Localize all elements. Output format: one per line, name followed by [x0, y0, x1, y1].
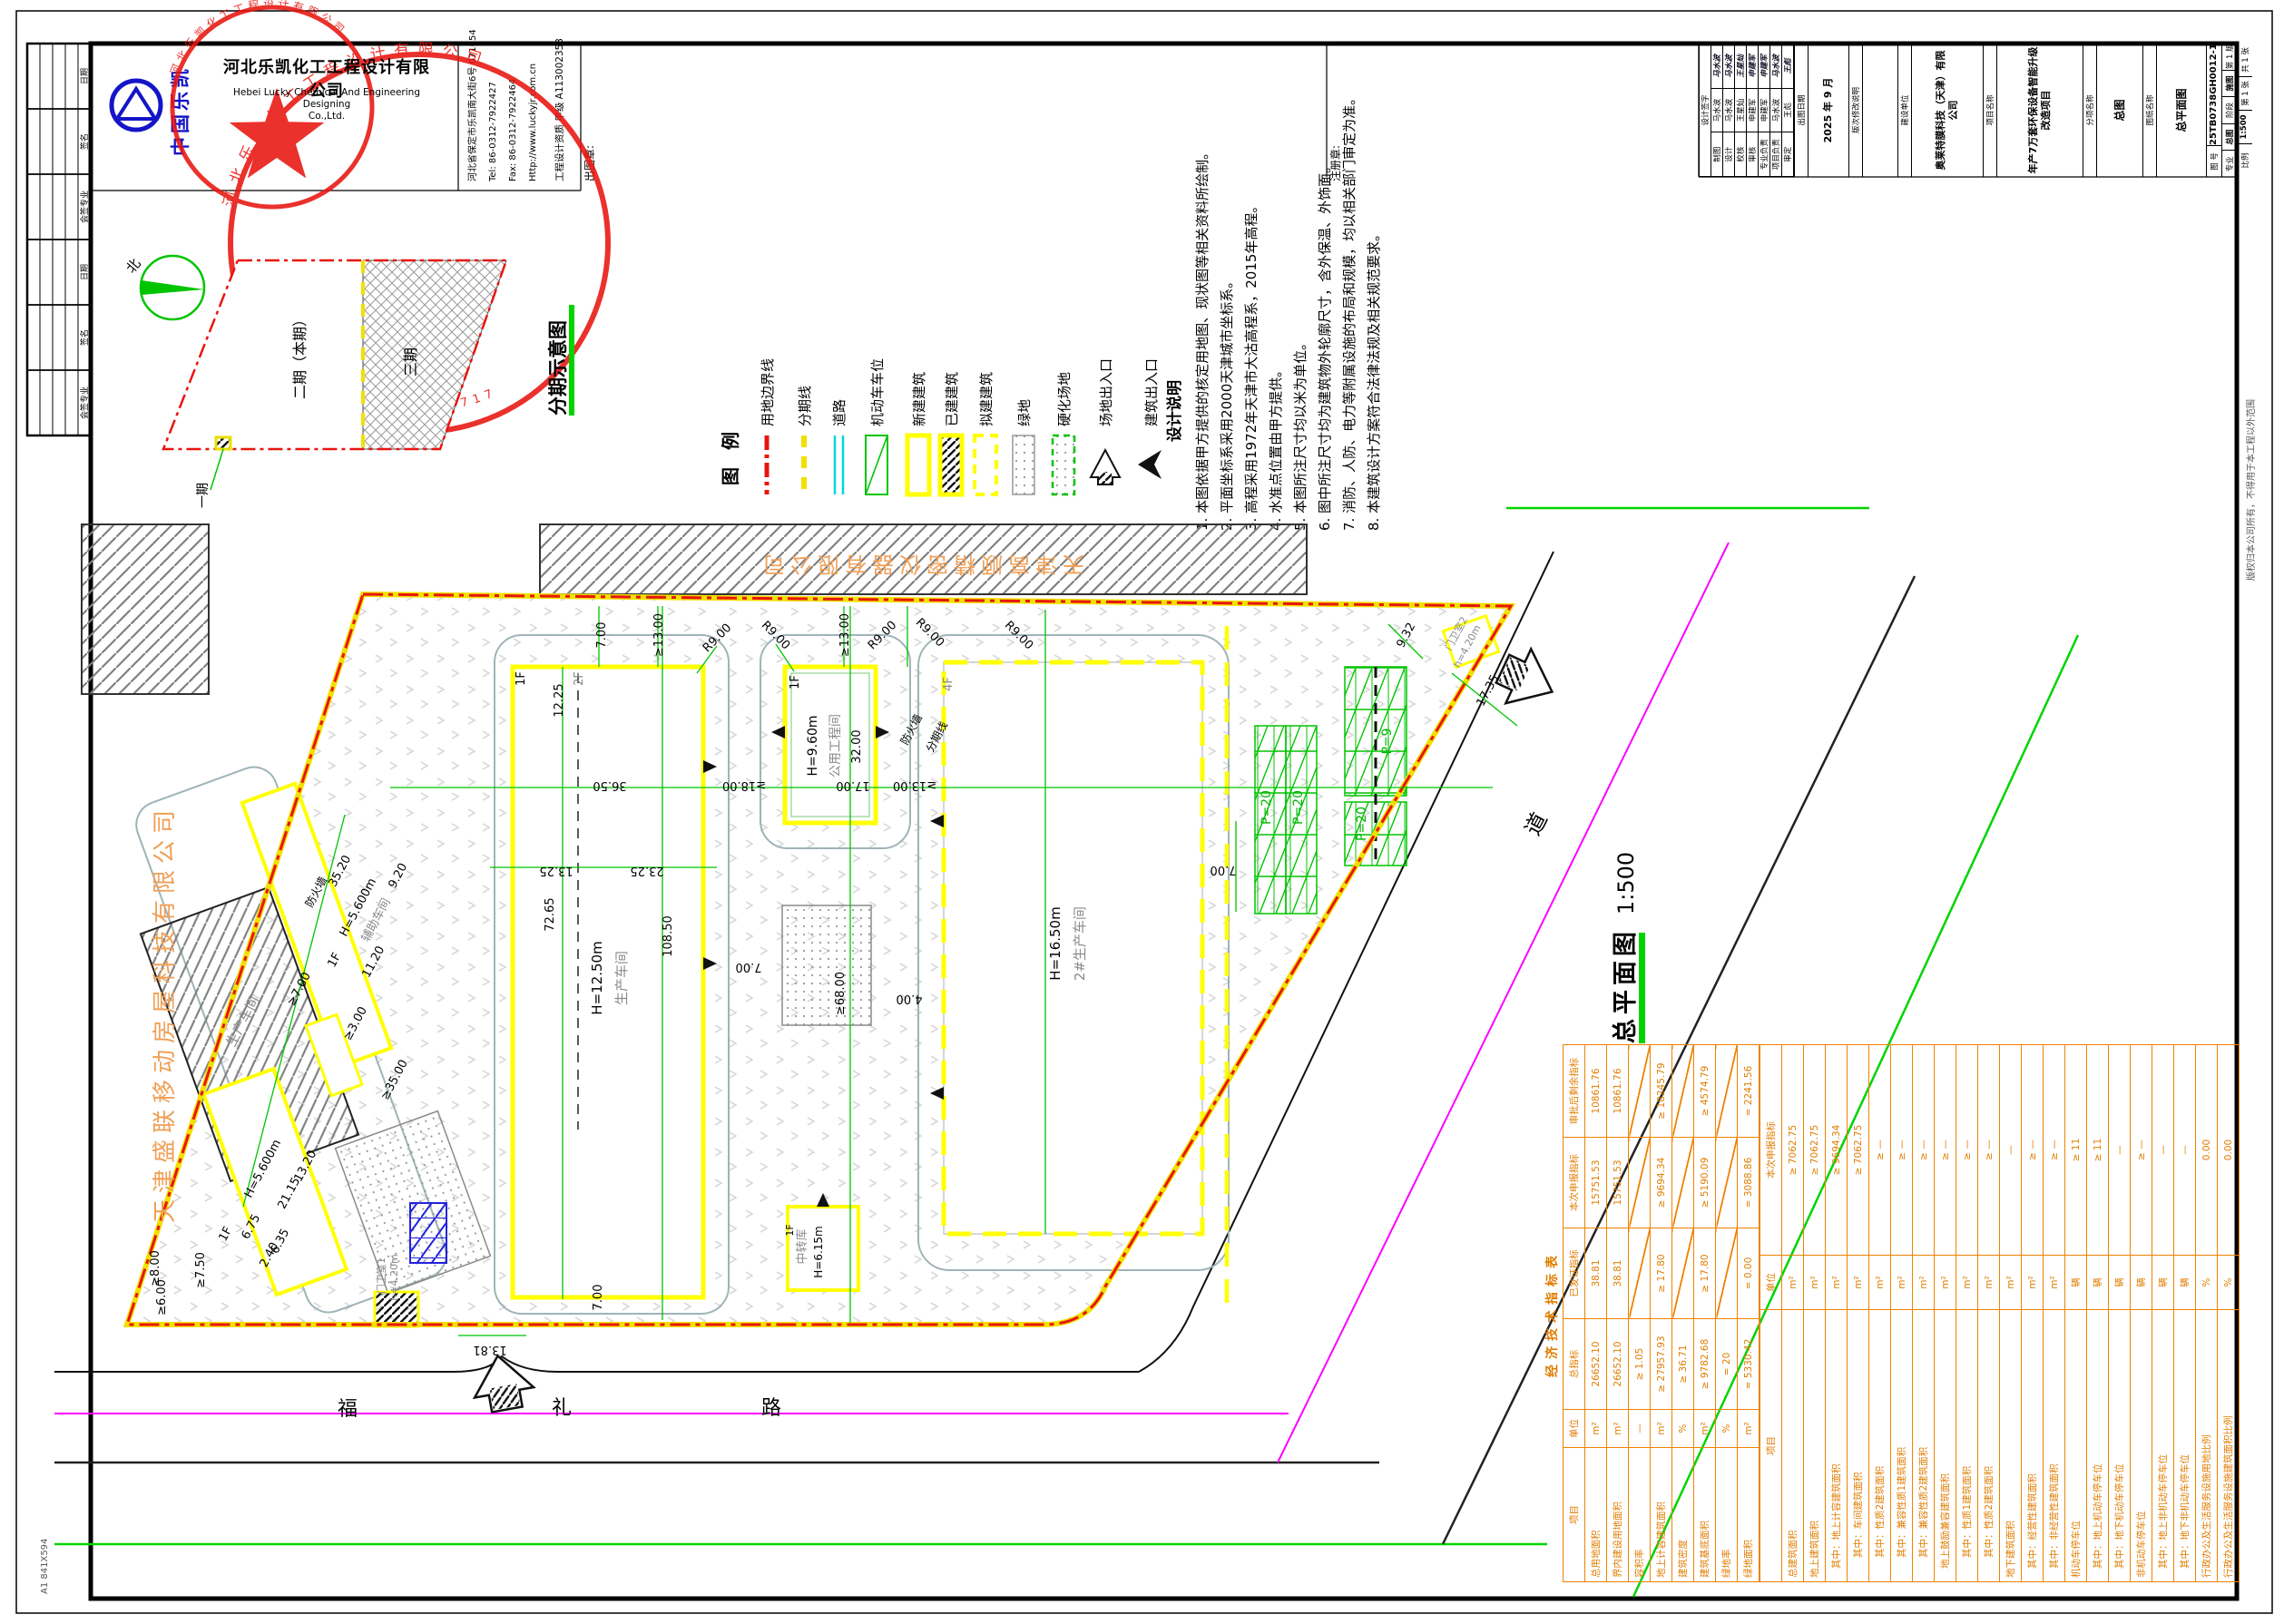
econ-cell: 辆 [2109, 1256, 2131, 1310]
legend-swatch-green [1013, 435, 1034, 494]
econ-cell: 其中：地下机动车停车位 [2109, 1310, 2131, 1582]
bicycle-parking [410, 1203, 446, 1263]
legend-swatch-proposed [975, 435, 996, 494]
signoff-header: 设计签字 [1700, 44, 1711, 177]
econ-cell: ≥ 18245.79 [1651, 1045, 1672, 1138]
econ-cell: 非机动车停车位 [2131, 1310, 2152, 1582]
titleblock-row-label: 分项名称 [2083, 44, 2097, 177]
signoff-role: 制图 [1711, 132, 1723, 177]
econ-row: 绿地面积m²= 5330.42= 0.00= 3088.86= 2241.56 [1738, 1045, 1760, 1582]
econ-cell: 辆 [2152, 1256, 2174, 1310]
signoff-signature: 马水波 [1770, 44, 1782, 89]
phase3-label: 三期 [402, 347, 419, 377]
stage-label: 阶段 [2222, 96, 2237, 123]
econ-cell: 10861.76 [1607, 1045, 1629, 1138]
econ-header: 单位 [1760, 1256, 1782, 1310]
rect [1099, 472, 1112, 484]
econ-cell: 其中：地上机动车停车位 [2087, 1310, 2109, 1582]
drawing-number-block: 图 号 25TB0738GH0012-1-01 专业 总图 阶段 施图 第 1 … [2206, 44, 2252, 177]
econ-table-part2: 项目单位本次申报指标总建筑面积m²≥ 7062.75地上建筑面积m²≥ 7062… [1760, 1044, 2240, 1582]
scale-label: 比例 [2238, 143, 2252, 177]
title-block: 设计签字制图 马水波 马水波设计 马水波 马水波校核 王星灿 王星灿审核 申建军 [1699, 44, 2237, 177]
phase-diagram-title: 分期示意图 [547, 320, 569, 416]
titleblock-row: 图纸名称 总平面图 [2142, 44, 2206, 177]
titleblock-row-label: 项目名称 [1984, 44, 1997, 177]
econ-cell: 辆 [2065, 1256, 2087, 1310]
plan-label: P=20 [1291, 790, 1306, 825]
econ-cell: ≥ — [1978, 1045, 2000, 1256]
econ-cell: m² [1848, 1256, 1869, 1310]
plan-label: 1F [789, 675, 802, 690]
econ-cell: m² [1913, 1256, 1935, 1310]
signoff-name: 申建军 [1759, 88, 1770, 132]
plan-label: 公用工程间 [828, 714, 843, 778]
econ-row: 建筑基底面积m²≥ 9782.68≥ 17.80≥ 5190.09≥ 4574.… [1694, 1045, 1716, 1582]
legend-item-label: 道路 [831, 399, 848, 426]
econ-cell: ≥ 11 [2087, 1045, 2109, 1256]
econ-cell: m² [1694, 1410, 1716, 1448]
plan-label: 2#生产车间 [1072, 906, 1088, 981]
econ-cell: ≥ 9694.34 [1651, 1138, 1672, 1228]
titleblock-row-value [1863, 44, 1897, 177]
econ-cell: m² [1738, 1410, 1760, 1448]
econ-cell: 10861.76 [1585, 1045, 1607, 1138]
econ-cell: — [2109, 1045, 2131, 1256]
econ-cell: 总用地面积 [1585, 1448, 1607, 1582]
econ-row: 机动车停车位辆≥ 11 [2065, 1045, 2087, 1582]
north-label: 北 [123, 255, 143, 276]
plan-title-scale: 1:500 [1613, 852, 1639, 915]
titleblock-row-label: 出图日期 [1795, 44, 1809, 177]
econ-cell: — [2174, 1045, 2196, 1256]
company-fax: Fax: 86-0312-7922464 [508, 79, 518, 181]
econ-cell: 38.81 [1607, 1228, 1629, 1319]
econ-cell: % [2218, 1256, 2240, 1310]
econ-cell: ≥ 17.80 [1651, 1228, 1672, 1319]
econ-row: 地下建筑面积m²— [2000, 1045, 2022, 1582]
signoff-row: 审定 王彪 王彪 [1782, 44, 1794, 177]
econ-cell: = 0.00 [1738, 1228, 1760, 1319]
econ-cell: ≥ 5190.09 [1694, 1138, 1716, 1228]
signoff-signature: 申建军 [1759, 44, 1770, 89]
plan-label: P=20 [1355, 807, 1369, 841]
legend-item-label: 场地出入口 [1098, 358, 1114, 426]
signoff-row: 专业负责 申建军 申建军 [1759, 44, 1770, 177]
econ-cell: 地下建筑面积 [2000, 1310, 2022, 1582]
signoff-role: 专业负责 [1759, 132, 1770, 177]
econ-row: 地上鼓励兼容建筑面积m²≥ — [1935, 1045, 1956, 1582]
econ-cell [1629, 1228, 1651, 1319]
econ-row: 地上计容建筑面积m²≥ 27957.93≥ 17.80≥ 9694.34≥ 18… [1651, 1045, 1672, 1582]
phase2-label: 二期（本期） [291, 312, 309, 399]
signoff-signature: 王彪 [1782, 44, 1794, 89]
titleblock-row-label: 版次修改说明 [1849, 44, 1863, 177]
econ-cell: 0.00 [2218, 1045, 2240, 1256]
legend-item-label: 新建建筑 [911, 372, 927, 426]
econ-cell [1672, 1138, 1694, 1228]
note-line: 8. 本建筑设计方案符合法律法规及相关规范要求。 [1366, 228, 1382, 531]
plan-label: 2F [573, 671, 586, 686]
legend-item-label: 分期线 [797, 386, 813, 426]
econ-cell: ≥ 4574.79 [1694, 1045, 1716, 1138]
neighbor-left-name: 天津盛联移动房屋科技有限公司 [152, 804, 179, 1223]
signoff-row: 制图 马水波 马水波 [1711, 44, 1723, 177]
legend-swatch-new [907, 435, 929, 494]
econ-row: 总建筑面积m²≥ 7062.75 [1782, 1045, 1804, 1582]
company-web: Http://www.luckyjr.com.cn [528, 64, 538, 181]
econ-cell: ≥ — [2131, 1045, 2152, 1256]
plan-label: 7.00 [592, 1285, 605, 1311]
econ-header: 单位 [1564, 1410, 1585, 1448]
plan-label: 13.25 [539, 864, 573, 877]
econ-cell: m² [1804, 1256, 1826, 1310]
plan-label: 7.00 [1211, 863, 1237, 876]
notes-title: 设计说明 [1165, 380, 1184, 442]
signoff-role: 设计 [1723, 132, 1735, 177]
econ-row: 其中：性质2建筑面积m²≥ — [1978, 1045, 2000, 1582]
econ-cell: ≥ — [1956, 1045, 1978, 1256]
econ-cell: m² [1978, 1256, 2000, 1310]
titleblock-row-value: 年产7万套环保设备智能升级改造项目 [1997, 44, 2083, 177]
econ-row: 其中：地下非机动车停车位辆— [2174, 1045, 2196, 1582]
phase-diagram: 一期 二期（本期） 三期 分期示意图 北 [123, 255, 574, 508]
econ-cell [1672, 1228, 1694, 1319]
econ-cell: 界内建设用地面积 [1607, 1448, 1629, 1582]
econ-cell: ≥ 7062.75 [1848, 1045, 1869, 1256]
plan-label: 72.65 [544, 897, 557, 931]
plan-label: ≥13.00 [838, 613, 852, 657]
signoff-name: 王星灿 [1735, 88, 1747, 132]
econ-row: 总用地面积m²26652.1038.8115751.5310861.76 [1585, 1045, 1607, 1582]
copyright-note: 版权归本公司所有，不得用于本工程以外范围 [2245, 399, 2257, 581]
econ-cell [1716, 1228, 1738, 1319]
plan-label: H=6.15m [812, 1226, 825, 1278]
signoff-name: 马水波 [1770, 88, 1782, 132]
plan-label: ≥6.00 [155, 1279, 169, 1316]
plan-label: h=4.20m [388, 1254, 400, 1300]
legend: 图 例 用地边界线分期线道路机动车车位新建建筑已建建筑拟建建筑绿地硬化场地场地出… [720, 358, 1162, 494]
plan-label: 4.00 [897, 992, 923, 1005]
econ-cell: ≥ 27957.93 [1651, 1319, 1672, 1410]
plan-label: ≥7.50 [194, 1252, 208, 1288]
econ-cell: 15751.53 [1607, 1138, 1629, 1228]
note-line: 6. 图中所注尺寸均为建筑物外轮廓尺寸，含外保温、外饰面。 [1317, 160, 1333, 531]
legend-title: 图 例 [720, 426, 741, 485]
scale-value: 1:500 [2238, 110, 2252, 143]
plan-label: 门卫室1 [375, 1257, 387, 1294]
drawing-sheet: 日期签名会签专业日期签名会签专业 中国乐凯 河北省保定市乐凯南大街6号 0710… [0, 0, 2284, 1624]
econ-cell: 地上建筑面积 [1804, 1310, 1826, 1582]
legend-swatch-built [940, 435, 962, 494]
econ-header: 项目 [1564, 1448, 1585, 1582]
signoff-role: 项目负责 [1770, 132, 1782, 177]
econ-cell [1716, 1138, 1738, 1228]
plan-label: 1F [515, 671, 528, 686]
econ-header: 已发证指标 [1564, 1228, 1585, 1319]
econ-cell: 其中：地上计容建筑面积 [1826, 1310, 1848, 1582]
plan-label: P=20 [1260, 790, 1274, 825]
signoff-row: 审核 申建军 申建军 [1747, 44, 1759, 177]
building-1-production [513, 667, 703, 1297]
note-line: 1. 本图依据甲方提供的核定用地图、现状图等相关资料所绘制。 [1194, 146, 1211, 531]
econ-header: 项目 [1760, 1310, 1782, 1582]
legend-item-label: 已建建筑 [944, 372, 960, 426]
plan-title: 总平面图 1:500 [1612, 852, 1645, 1043]
econ-header: 本次申报指标 [1564, 1138, 1585, 1228]
east-road-name: 道 [1520, 808, 1553, 839]
econ-table-title: 经济技术指标表 [1543, 1045, 1563, 1582]
company-name-en-2: Co.,Ltd. [216, 111, 437, 122]
econ-cell: 0.00 [2196, 1045, 2218, 1256]
econ-row: 其中：地上机动车停车位辆≥ 11 [2087, 1045, 2109, 1582]
econ-row: 其中：非经营性建筑面积m²≥ — [2044, 1045, 2065, 1582]
note-line: 5. 本图所注尺寸均以米为单位。 [1292, 337, 1309, 531]
titleblock-row-label: 图纸名称 [2143, 44, 2157, 177]
signoff-name: 申建军 [1747, 88, 1759, 132]
econ-cell: 绿地率 [1716, 1448, 1738, 1582]
econ-cell: ≥ — [2044, 1045, 2065, 1256]
stage-value: 施图 [2222, 70, 2237, 97]
plan-label: 108.50 [662, 915, 675, 957]
econ-cell: ≥ 9694.34 [1826, 1045, 1848, 1256]
econ-cell: 其中：车间建筑面积 [1848, 1310, 1869, 1582]
discipline-label: 专业 [2222, 150, 2237, 177]
econ-row: 地上建筑面积m²≥ 7062.75 [1804, 1045, 1826, 1582]
econ-cell: m² [1956, 1256, 1978, 1310]
drawing-no: 25TB0738GH0012-1-01 [2207, 44, 2221, 145]
phase1-label: 一期 [196, 483, 211, 508]
econ-cell [1716, 1045, 1738, 1138]
signoff-name: 马水波 [1711, 88, 1723, 132]
econ-cell [1629, 1138, 1651, 1228]
econ-cell: ≥ 36.71 [1672, 1319, 1694, 1410]
legend-item-label: 硬化场地 [1056, 372, 1073, 426]
north-arrow-icon: 北 [123, 255, 204, 319]
discipline-value: 总图 [2222, 123, 2237, 151]
note-line: 2. 平面坐标系采用2000天津城市坐标系。 [1219, 275, 1235, 531]
legend-item-label: 机动车车位 [869, 358, 886, 426]
plan-label: 17.35 [1475, 672, 1503, 709]
econ-row: 建筑密度%≥ 36.71 [1672, 1045, 1694, 1582]
titleblock-row-value: 总图 [2097, 44, 2142, 177]
econ-header: 总指标 [1564, 1319, 1585, 1410]
econ-cell: m² [2022, 1256, 2044, 1310]
titleblock-row: 出图日期 2025 年 9 月 [1794, 44, 1848, 177]
signoff-row: 校核 王星灿 王星灿 [1735, 44, 1747, 177]
econ-row: 非机动车停车位辆≥ — [2131, 1045, 2152, 1582]
south-road-name-char3: 路 [761, 1397, 781, 1420]
econ-cell: 辆 [2087, 1256, 2109, 1310]
econ-cell: 其中：经营性建筑面积 [2022, 1310, 2044, 1582]
plan-label: 7.00 [595, 622, 609, 649]
econ-cell: 建筑基底面积 [1694, 1448, 1716, 1582]
econ-cell: 38.81 [1585, 1228, 1607, 1319]
signoff-signature: 马水波 [1723, 44, 1735, 89]
econ-row: 其中：兼容性质2建筑面积m²≥ — [1913, 1045, 1935, 1582]
econ-row: 行政办公及生活服务设施建筑面积比例%0.00 [2218, 1045, 2240, 1582]
titleblock-row-value: 2025 年 9 月 [1809, 44, 1848, 177]
signoff-name: 马水波 [1723, 88, 1735, 132]
econ-cell: 容积率 [1629, 1448, 1651, 1582]
econ-cell: — [2152, 1045, 2174, 1256]
signoff-row: 项目负责 马水波 马水波 [1770, 44, 1782, 177]
econ-row: 其中：兼容性质1建筑面积m²≥ — [1891, 1045, 1913, 1582]
legend-item-label: 绿地 [1016, 399, 1033, 426]
signature-bar: 日期签名会签专业日期签名会签专业 [27, 44, 91, 435]
plan-label: H=9.60m [806, 715, 820, 776]
signoff-role: 审核 [1747, 132, 1759, 177]
econ-cell: = 5330.42 [1738, 1319, 1760, 1410]
signbar-label: 日期 [80, 68, 90, 84]
signoff-row: 设计 马水波 马水波 [1723, 44, 1735, 177]
econ-row: 其中：地上计容建筑面积m²≥ 9694.34 [1826, 1045, 1848, 1582]
titleblock-row: 建设单位 奥莱特膜科技（天津）有限公司 [1897, 44, 1983, 177]
econ-cell: ≥ — [1935, 1045, 1956, 1256]
titleblock-row: 版次修改说明 [1848, 44, 1897, 177]
plan-label: 1F [784, 1224, 796, 1236]
plan-label: 36.50 [593, 778, 626, 792]
plan-label: 4F [942, 677, 956, 691]
econ-cell: 其中：地下非机动车停车位 [2174, 1310, 2196, 1582]
econ-cell: m² [1935, 1256, 1956, 1310]
sheet-size-label: A1 841X594 [40, 1539, 50, 1594]
plan-label: ≥68.00 [834, 972, 848, 1015]
signoff-name: 王彪 [1782, 88, 1794, 132]
econ-cell: 其中：非经营性建筑面积 [2044, 1310, 2065, 1582]
plan-label: 17.00 [836, 778, 869, 792]
economic-indicator-table: 经济技术指标表 项目单位总指标已发证指标本次申报指标审批后剩余指标总用地面积m²… [1543, 1045, 2237, 1582]
signoff-role: 审定 [1782, 132, 1794, 177]
econ-cell: 总建筑面积 [1782, 1310, 1804, 1582]
econ-cell: m² [1891, 1256, 1913, 1310]
note-line: 4. 水准点位置由甲方提供。 [1268, 364, 1284, 531]
titleblock-row-value: 总平面图 [2157, 44, 2206, 177]
design-notes: 设计说明 1. 本图依据甲方提供的核定用地图、现状图等相关资料所绘制。2. 平面… [1165, 92, 1382, 531]
econ-row: 其中：地上非机动车停车位辆— [2152, 1045, 2174, 1582]
version: 第 1 版 [2222, 44, 2237, 70]
plan-label: 12.25 [553, 683, 566, 717]
plan-label: 32.00 [850, 729, 864, 763]
econ-cell: 机动车停车位 [2065, 1310, 2087, 1582]
econ-table-part1: 项目单位总指标已发证指标本次申报指标审批后剩余指标总用地面积m²26652.10… [1563, 1044, 1760, 1582]
econ-cell: 其中：地上非机动车停车位 [2152, 1310, 2174, 1582]
econ-cell: % [1716, 1410, 1738, 1448]
legend-swatch-bldg-entry-icon [1138, 450, 1162, 479]
neighbor-building-topleft [82, 524, 209, 694]
legend-swatch-paved [1053, 435, 1074, 494]
signbar-label: 会签专业 [79, 386, 90, 419]
econ-cell: ≥ 9782.68 [1694, 1319, 1716, 1410]
econ-cell: m² [2044, 1256, 2065, 1310]
econ-header: 审批后剩余指标 [1564, 1045, 1585, 1138]
econ-row: 其中：性质1建筑面积m²≥ — [1956, 1045, 1978, 1582]
neighbor-top-name: 天津高顺精密仪器有限公司 [758, 552, 1084, 577]
econ-cell: 地上计容建筑面积 [1651, 1448, 1672, 1582]
econ-cell: 其中：性质1建筑面积 [1956, 1310, 1978, 1582]
econ-cell: — [2000, 1045, 2022, 1256]
titleblock-row-label: 建设单位 [1898, 44, 1912, 177]
plan-title-name: 总平面图 [1612, 927, 1640, 1043]
econ-row: 其中：经营性建筑面积m²≥ — [2022, 1045, 2044, 1582]
plan-label: 13.81 [473, 1343, 506, 1356]
econ-cell: ≥ — [1913, 1045, 1935, 1256]
econ-cell: 26652.10 [1607, 1319, 1629, 1410]
plan-label: 生产车间 [613, 951, 630, 1005]
econ-cell: m² [1607, 1410, 1629, 1448]
econ-row: 其中：性质2建筑面积m²≥ — [1869, 1045, 1891, 1582]
econ-cell: % [2196, 1256, 2218, 1310]
econ-row: 绿地率%= 20 [1716, 1045, 1738, 1582]
drawing-no-label: 图 号 [2207, 145, 2221, 177]
econ-header: 本次申报指标 [1760, 1045, 1782, 1256]
econ-cell: = 2241.56 [1738, 1045, 1760, 1138]
econ-cell: ≥ 7062.75 [1782, 1045, 1804, 1256]
signbar-label: 签名 [79, 329, 90, 346]
econ-cell: — [1629, 1410, 1651, 1448]
econ-cell [1672, 1045, 1694, 1138]
econ-row: 界内建设用地面积m²26652.1038.8115751.5310861.76 [1607, 1045, 1629, 1582]
econ-cell: 行政办公及生活服务设施建筑面积比例 [2218, 1310, 2240, 1582]
plan-label: H=12.50m [589, 941, 605, 1014]
legend-item-label: 建筑出入口 [1143, 358, 1160, 426]
signbar-label: 签名 [79, 133, 90, 150]
company-name-en-1: Hebei Lucky Chemical And Engineering Des… [216, 87, 437, 111]
econ-cell: 行政办公及生活服务设施用地比例 [2196, 1310, 2218, 1582]
econ-cell: m² [1826, 1256, 1848, 1310]
plan-label: ≥13.00 [652, 613, 666, 657]
legend-item-label: 拟建建筑 [978, 372, 995, 426]
econ-cell: ≥ 1.05 [1629, 1319, 1651, 1410]
econ-cell: ≥ — [1891, 1045, 1913, 1256]
econ-cell: m² [1782, 1256, 1804, 1310]
econ-cell: 26652.10 [1585, 1319, 1607, 1410]
econ-cell: = 3088.86 [1738, 1138, 1760, 1228]
econ-cell: m² [1585, 1410, 1607, 1448]
phase1-box [216, 437, 230, 449]
econ-cell: ≥ 7062.75 [1804, 1045, 1826, 1256]
signoff-role: 校核 [1735, 132, 1747, 177]
signbar-label: 日期 [80, 264, 90, 280]
signoff-signature: 王星灿 [1735, 44, 1747, 89]
econ-cell: m² [1869, 1256, 1891, 1310]
south-road [54, 1356, 1547, 1544]
plan-label: 7.00 [736, 960, 762, 973]
econ-row: 其中：车间建筑面积m²≥ 7062.75 [1848, 1045, 1869, 1582]
green-area [782, 905, 871, 1025]
plan-label: ≥18.00 [722, 778, 766, 792]
note-line: 7. 消防、人防、电力等附属设施的布局和规模，均以相关部门审定为准。 [1341, 92, 1358, 531]
plan-label: ≥13.00 [893, 778, 936, 792]
econ-row: 容积率—≥ 1.05 [1629, 1045, 1651, 1582]
titleblock-row: 分项名称 总图 [2083, 44, 2142, 177]
legend-swatch-site-entry-icon [1091, 450, 1120, 484]
plan-label: P=9 [1380, 728, 1395, 754]
econ-cell: 其中：兼容性质1建筑面积 [1891, 1310, 1913, 1582]
pages: 共 1 张 [2238, 44, 2252, 76]
south-road-name-char1: 福 [338, 1398, 358, 1421]
signoff-table: 设计签字制图 马水波 马水波设计 马水波 马水波校核 王星灿 王星灿审核 申建军 [1699, 44, 1794, 177]
titleblock-row: 项目名称 年产7万套环保设备智能升级改造项目 [1983, 44, 2083, 177]
titleblock-row-value: 奥莱特膜科技（天津）有限公司 [1912, 44, 1983, 177]
econ-cell: 其中：性质2建筑面积 [1978, 1310, 2000, 1582]
south-road-name-char2: 礼 [552, 1397, 572, 1420]
econ-cell: % [1672, 1410, 1694, 1448]
legend-item-label: 用地边界线 [760, 358, 776, 426]
econ-cell: 地上鼓励兼容建筑面积 [1935, 1310, 1956, 1582]
company-name-en: Hebei Lucky Chemical And Engineering Des… [216, 87, 437, 122]
econ-cell: m² [1651, 1410, 1672, 1448]
note-line: 3. 高程采用1972年天津市大沽高程系，2015年高程。 [1243, 200, 1260, 531]
